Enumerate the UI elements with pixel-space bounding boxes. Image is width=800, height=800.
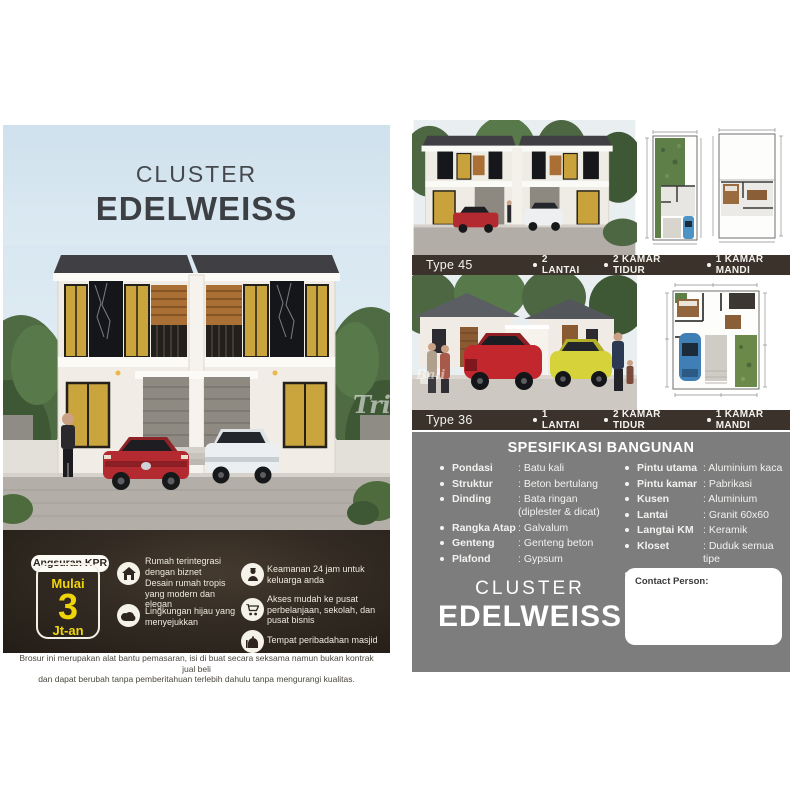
spec-row: Pintu kamar: Pabrikasi bbox=[625, 478, 787, 491]
type45-feature: 2 KAMAR TIDUR bbox=[604, 254, 685, 276]
bullet-dot bbox=[707, 418, 711, 422]
type45-label: Type 45 bbox=[426, 258, 503, 272]
type45-feature: 2 LANTAI bbox=[533, 254, 582, 276]
spec-column-1: Pondasi: Batu kali Struktur: Beton bertu… bbox=[440, 462, 610, 568]
bullet-dot bbox=[533, 418, 536, 422]
brochure-canvas: CLUSTER EDELWEISS bbox=[0, 0, 800, 800]
specifications-section: SPESIFIKASI BANGUNAN Pondasi: Batu kali … bbox=[412, 432, 790, 672]
right-page: Type 45 2 LANTAI 2 KAMAR TIDUR 1 KAMAR M… bbox=[412, 118, 790, 672]
type36-feature: 1 LANTAI bbox=[533, 409, 582, 431]
brand-edelweiss: EDELWEISS bbox=[430, 600, 630, 634]
spec-row: Genteng: Genteng beton bbox=[440, 537, 610, 550]
price-value: 3 bbox=[38, 591, 98, 623]
spec-row: Kloset: Duduk semua tipe bbox=[625, 540, 787, 566]
feature-text: Tempat peribadahan masjid bbox=[267, 635, 379, 646]
duplex-house-illustration: Trib bbox=[3, 245, 390, 530]
type36-house-illustration: Bali bbox=[412, 275, 637, 410]
spec-row: Struktur: Beton bertulang bbox=[440, 478, 610, 491]
bullet-dot bbox=[604, 418, 608, 422]
type45-bar: Type 45 2 LANTAI 2 KAMAR TIDUR 1 KAMAR M… bbox=[412, 255, 790, 275]
type36-label: Type 36 bbox=[426, 413, 503, 427]
type45-feature: 1 KAMAR MANDI bbox=[707, 254, 790, 276]
spec-row: Pondasi: Batu kali bbox=[440, 462, 610, 475]
shopping-cart-icon bbox=[241, 598, 264, 621]
feature-text: Keamanan 24 jam untuk keluarga anda bbox=[267, 564, 379, 585]
feature-text: Desain rumah tropis yang modern dan eleg… bbox=[145, 578, 243, 610]
left-page: CLUSTER EDELWEISS bbox=[3, 125, 390, 685]
spec-row: Dinding: Bata ringan (diplester & dicat) bbox=[440, 493, 610, 519]
brand-cluster: CLUSTER bbox=[430, 578, 630, 600]
brand-block: CLUSTER EDELWEISS bbox=[430, 578, 630, 634]
spec-row: Pintu utama: Aluminium kaca bbox=[625, 462, 787, 475]
duplex-house-render: Trib bbox=[3, 245, 390, 530]
type45-house-illustration bbox=[412, 120, 637, 255]
page-title: CLUSTER EDELWEISS bbox=[3, 161, 390, 228]
type36-floorplan-drawing bbox=[637, 275, 790, 410]
feature-text: Rumah terintegrasi dengan biznet bbox=[145, 556, 243, 577]
price-box: Mulai 3 Jt-an bbox=[36, 563, 100, 639]
bullet-dot bbox=[604, 263, 608, 267]
disclaimer: Brosur ini merupakan alat bantu pemasara… bbox=[15, 653, 378, 685]
disclaimer-line2: dan dapat berubah tanpa pemberitahuan te… bbox=[15, 674, 378, 685]
title-edelweiss: EDELWEISS bbox=[3, 190, 390, 228]
spec-row: Kusen: Aluminium bbox=[625, 493, 787, 506]
spec-row: Plafond: Gypsum bbox=[440, 553, 610, 566]
type45-floorplans bbox=[637, 120, 790, 255]
bullet-dot bbox=[707, 263, 711, 267]
bullet-dot bbox=[533, 263, 536, 267]
spec-row: Lantai: Granit 60x60 bbox=[625, 509, 787, 522]
type45-floorplan-drawings bbox=[637, 120, 790, 255]
title-cluster: CLUSTER bbox=[3, 161, 390, 188]
spec-row: Rangka Atap: Galvalum bbox=[440, 522, 610, 535]
feature-text: Akses mudah ke pusat perbelanjaan, sekol… bbox=[267, 594, 379, 626]
plan-car bbox=[679, 333, 701, 381]
promo-section: Angsuran KPR Mulai 3 Jt-an Rumah terinte… bbox=[3, 530, 390, 653]
tribun-watermark: Trib bbox=[353, 390, 390, 419]
contact-person-box: Contact Person: bbox=[625, 568, 782, 645]
type36-feature: 1 KAMAR MANDI bbox=[707, 409, 790, 431]
type36-feature: 2 KAMAR TIDUR bbox=[604, 409, 685, 431]
type36-floorplan bbox=[637, 275, 790, 410]
contact-label: Contact Person: bbox=[635, 576, 772, 587]
bali-watermark: Bali bbox=[415, 368, 445, 383]
price-suffix: Jt-an bbox=[38, 623, 98, 638]
spec-title: SPESIFIKASI BANGUNAN bbox=[412, 440, 790, 456]
mosque-icon bbox=[241, 630, 264, 653]
type45-photo bbox=[412, 120, 637, 255]
spec-row: Langtai KM: Keramik bbox=[625, 524, 787, 537]
disclaimer-line1: Brosur ini merupakan alat bantu pemasara… bbox=[15, 653, 378, 674]
type36-bar: Type 36 1 LANTAI 2 KAMAR TIDUR 1 KAMAR M… bbox=[412, 410, 790, 430]
type36-photo: Bali bbox=[412, 275, 637, 410]
feature-text: Lingkungan hijau yang menyejukkan bbox=[145, 606, 243, 627]
security-guard-icon bbox=[241, 563, 264, 586]
cloud-icon bbox=[117, 604, 140, 627]
house-icon bbox=[117, 562, 140, 585]
